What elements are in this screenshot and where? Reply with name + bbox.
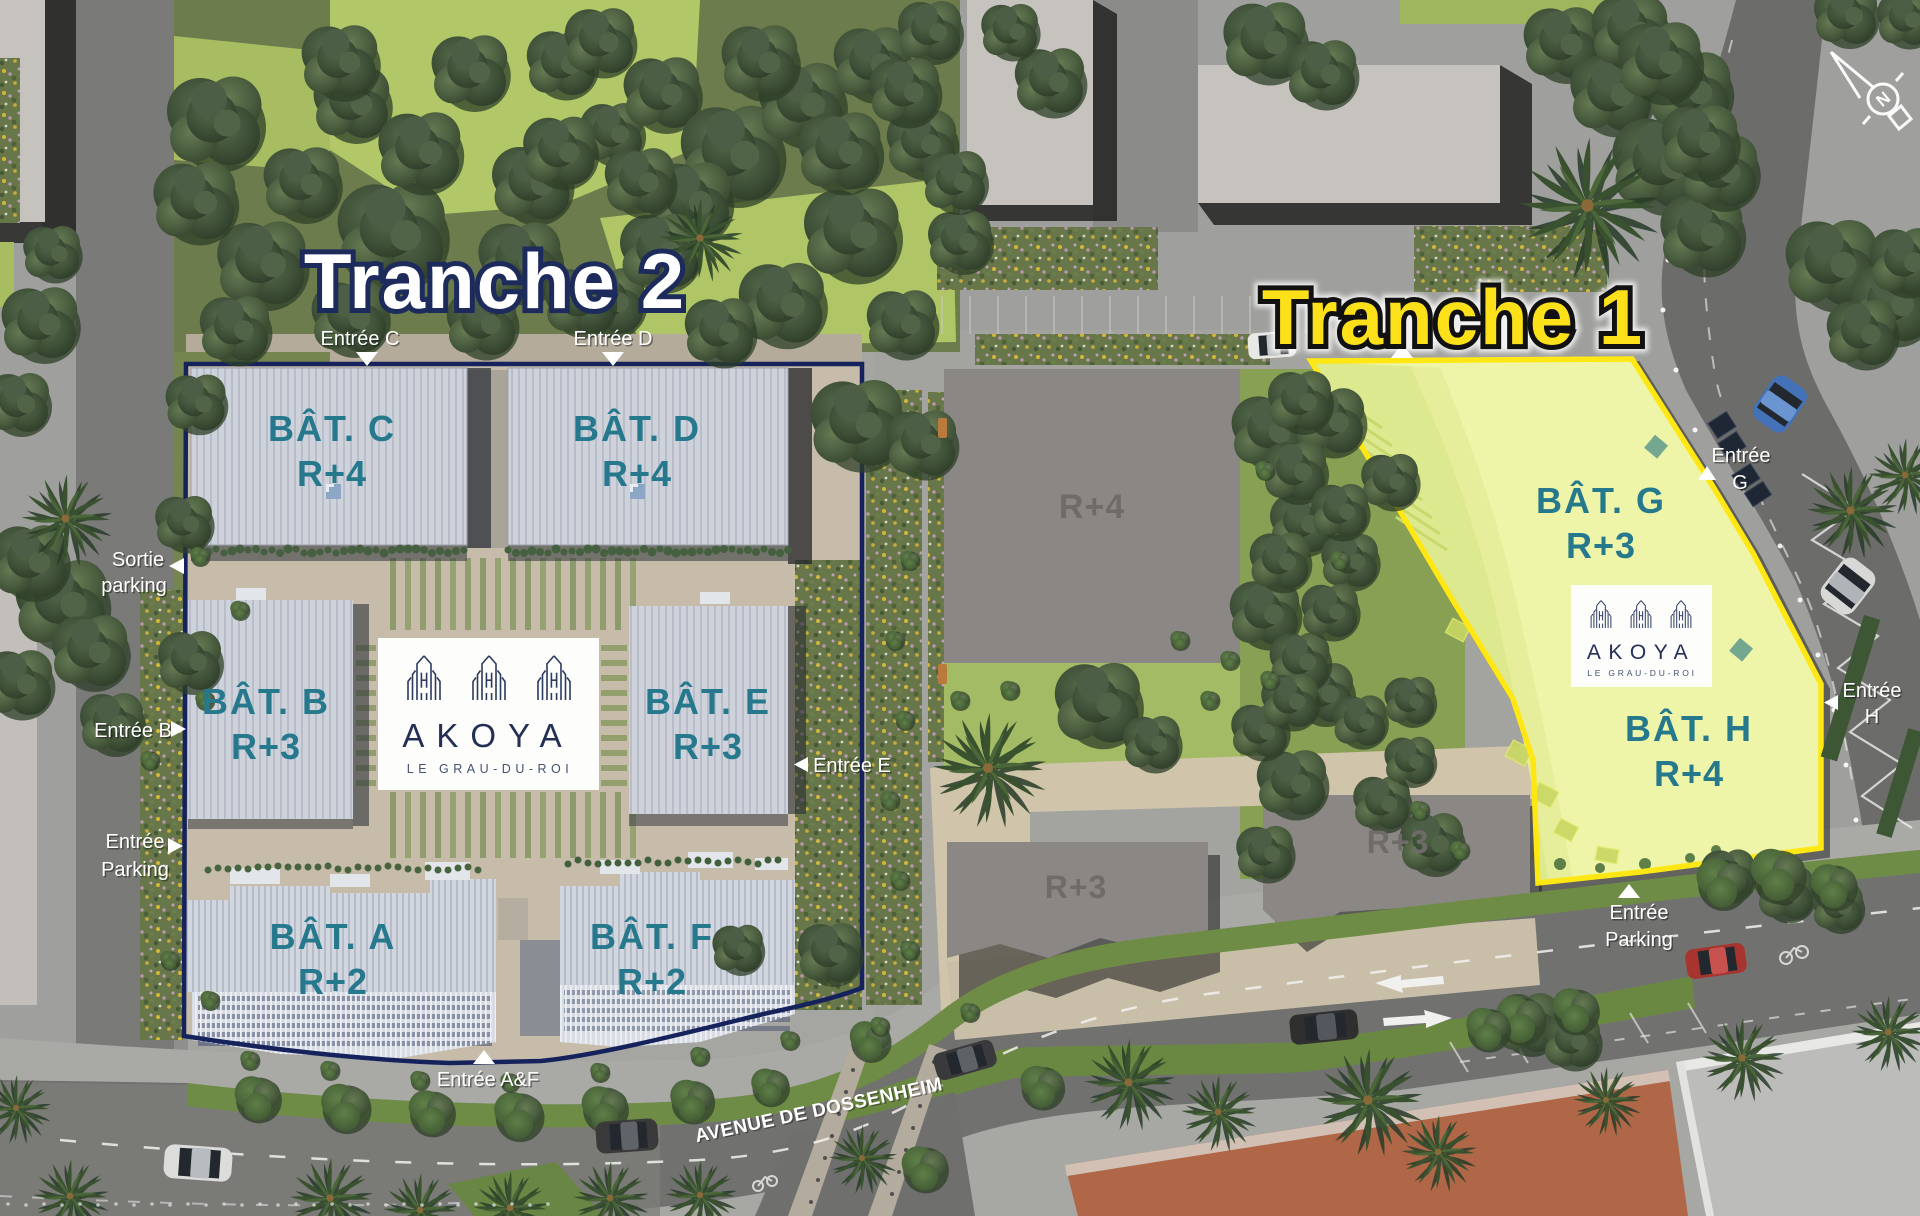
svg-text:BÂT. A: BÂT. A [270,915,397,957]
svg-text:R+2: R+2 [617,961,687,1002]
svg-text:BÂT. G: BÂT. G [1536,479,1666,521]
svg-text:G: G [1732,472,1748,494]
svg-text:Entrée: Entrée [1712,445,1771,467]
svg-text:Sortie: Sortie [112,549,164,571]
svg-text:BÂT. E: BÂT. E [645,680,771,722]
svg-text:Tranche 2: Tranche 2 [304,237,686,325]
svg-text:parking: parking [101,575,167,597]
svg-text:BÂT. H: BÂT. H [1625,707,1753,749]
svg-text:R+4: R+4 [1059,488,1125,526]
svg-text:Entrée E: Entrée E [813,755,891,777]
svg-text:R+2: R+2 [298,961,368,1002]
svg-text:R+3: R+3 [673,726,743,767]
svg-text:AKOYA: AKOYA [1587,641,1695,664]
svg-text:R+4: R+4 [297,453,367,494]
svg-text:R+3: R+3 [1367,824,1430,860]
svg-text:Entrée: Entrée [1843,680,1902,702]
svg-text:BÂT. B: BÂT. B [202,680,330,722]
svg-text:R+3: R+3 [1045,869,1108,905]
svg-text:R+4: R+4 [602,453,672,494]
svg-text:Parking: Parking [1605,929,1673,951]
svg-text:H: H [1865,706,1879,728]
svg-text:Tranche 1: Tranche 1 [1262,273,1644,361]
svg-text:Entrée D: Entrée D [574,328,653,350]
svg-text:Entrée B: Entrée B [94,720,172,742]
svg-text:LE GRAU-DU-ROI: LE GRAU-DU-ROI [1587,668,1697,678]
svg-text:R+3: R+3 [1566,525,1636,566]
svg-text:Entrée: Entrée [106,831,165,853]
svg-text:Entrée: Entrée [1610,902,1669,924]
svg-text:LE GRAU-DU-ROI: LE GRAU-DU-ROI [407,762,573,776]
svg-text:AKOYA: AKOYA [402,717,573,754]
svg-text:BÂT. F: BÂT. F [590,915,714,957]
svg-text:Entrée A&F: Entrée A&F [437,1069,539,1091]
svg-text:Parking: Parking [101,859,169,881]
svg-text:R+4: R+4 [1654,753,1724,794]
svg-text:BÂT. D: BÂT. D [573,407,701,449]
svg-text:R+3: R+3 [231,726,301,767]
svg-text:BÂT. C: BÂT. C [268,407,396,449]
svg-text:Entrée C: Entrée C [321,328,400,350]
